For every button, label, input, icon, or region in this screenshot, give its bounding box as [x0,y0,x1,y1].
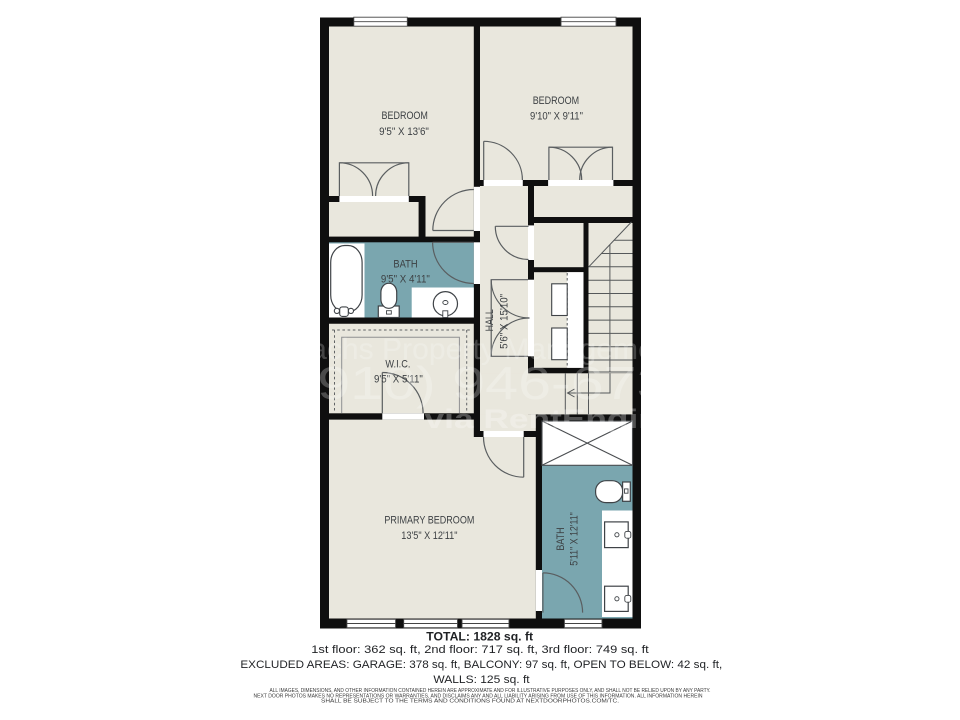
svg-text:SHALL BE SUBJECT TO THE TERMS: SHALL BE SUBJECT TO THE TERMS AND CONDIT… [321,699,619,705]
svg-text:5'11" X 12'11": 5'11" X 12'11" [569,512,581,566]
svg-text:BEDROOM: BEDROOM [382,110,428,122]
svg-text:PRIMARY BEDROOM: PRIMARY BEDROOM [384,514,474,526]
svg-text:9'5" X 13'6": 9'5" X 13'6" [379,126,429,138]
svg-text:TOTAL: 1828 sq. ft: TOTAL: 1828 sq. ft [426,629,533,643]
svg-text:BATH: BATH [555,527,567,550]
svg-text:EXCLUDED AREAS: GARAGE: 378 sq: EXCLUDED AREAS: GARAGE: 378 sq. ft, BALC… [240,659,722,671]
svg-text:(910) 946-6734: (910) 946-6734 [298,357,703,409]
svg-text:BEDROOM: BEDROOM [533,95,579,107]
svg-text:HALL: HALL [484,309,496,331]
svg-text:1st floor: 362 sq. ft, 2nd flo: 1st floor: 362 sq. ft, 2nd floor: 717 sq… [311,644,649,656]
svg-text:WALLS: 125 sq. ft: WALLS: 125 sq. ft [433,674,529,686]
svg-text:13'5" X 12'11": 13'5" X 12'11" [401,530,457,542]
svg-text:9'10" X 9'11": 9'10" X 9'11" [530,110,583,122]
svg-text:BATH: BATH [393,258,417,270]
svg-text:9'5" X 4'11": 9'5" X 4'11" [381,274,430,286]
svg-text:via RentEngine: via RentEngine [425,404,680,434]
